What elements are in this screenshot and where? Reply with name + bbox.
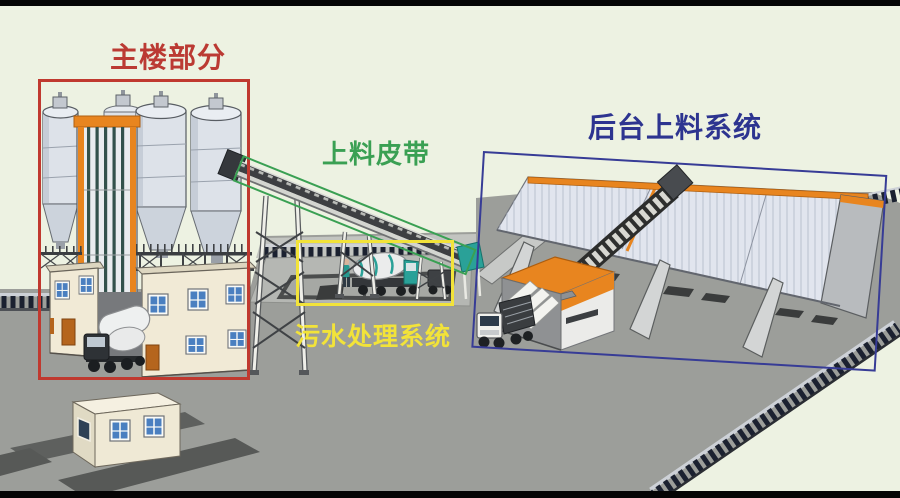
office-building xyxy=(73,393,180,467)
main-building-annotation-box xyxy=(38,79,250,380)
sewage-treatment-label: 污水处理系统 xyxy=(295,317,451,353)
feeding-belt-label: 上料皮带 xyxy=(322,134,430,171)
window xyxy=(78,418,90,441)
letterbox-bar-bottom xyxy=(0,491,900,498)
main-building-label: 主楼部分 xyxy=(110,36,226,76)
backend-feeding-annotation-box xyxy=(471,151,887,372)
batching-plant-diagram: 主楼部分 上料皮带 污水处理系统 后台上料系统 xyxy=(0,0,900,498)
window xyxy=(110,420,130,441)
letterbox-bar-top xyxy=(0,0,900,6)
backend-feeding-label: 后台上料系统 xyxy=(588,106,762,146)
sewage-treatment-annotation-box xyxy=(296,240,454,306)
window xyxy=(144,416,164,437)
